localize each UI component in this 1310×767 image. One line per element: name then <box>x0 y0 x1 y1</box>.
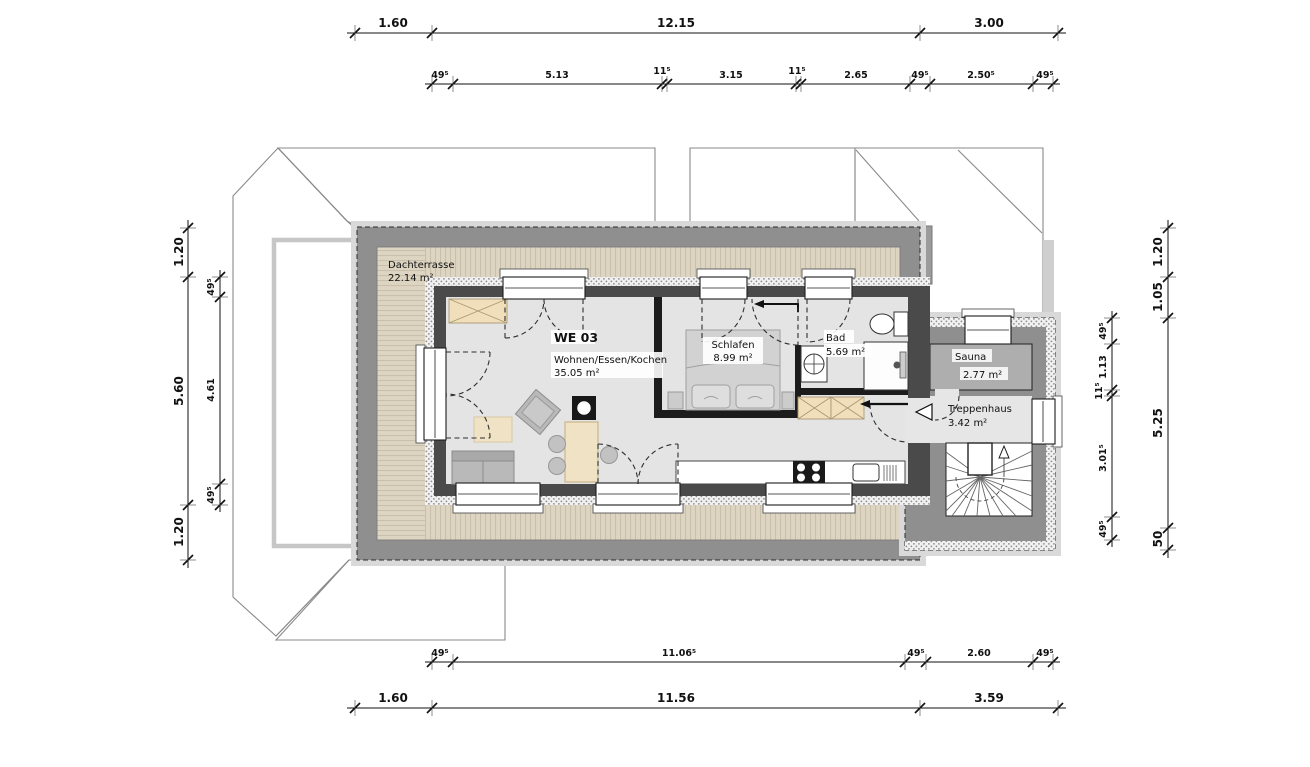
label-treppenhaus-area: 3.42 m² <box>948 418 987 429</box>
label-sauna: Sauna <box>955 352 986 363</box>
dimension-right-outer: 1.20 1.05 5.25 50 <box>1151 220 1176 558</box>
dim-label: 49⁵ <box>431 648 448 659</box>
washbasin <box>801 346 827 382</box>
dim-label: 49⁵ <box>1036 70 1053 81</box>
dim-label: 1.60 <box>378 16 408 30</box>
dim-label: 1.20 <box>172 237 186 267</box>
rug <box>474 417 512 442</box>
roof-edge-strip <box>1043 240 1054 318</box>
chair <box>601 447 618 464</box>
dim-label: 11⁵ <box>788 66 805 77</box>
roof-left-top-slope <box>278 148 655 227</box>
dining-table <box>565 422 598 482</box>
dim-label: 1.60 <box>378 691 408 705</box>
dimension-bottom-outer: 1.60 11.56 3.59 <box>347 691 1066 716</box>
dim-label: 49⁵ <box>1098 322 1109 339</box>
dim-label: 49⁵ <box>911 70 928 81</box>
label-bad-area: 5.69 m² <box>826 347 865 358</box>
dim-label: 5.60 <box>172 376 186 406</box>
dim-label: 3.01⁵ <box>1098 444 1109 472</box>
dimension-top-outer: 1.60 12.15 3.00 <box>347 16 1066 41</box>
dim-label: 3.15 <box>719 70 742 81</box>
cooktop <box>793 461 825 484</box>
roof-left-main-slope <box>233 148 358 636</box>
label-dachterrasse-area: 22.14 m² <box>388 273 434 284</box>
dimension-left-inner: 49⁵ 4.61 49⁵ <box>206 270 228 512</box>
dimension-bottom-inner: 49⁵ 11.06⁵ 49⁵ 2.60 49⁵ <box>425 648 1060 670</box>
label-treppenhaus: Treppenhaus <box>947 404 1012 415</box>
dimension-top-inner: 49⁵ 5.13 11⁵ 3.15 11⁵ 2.65 49⁵ 2.50⁵ 49⁵ <box>425 66 1060 92</box>
chair <box>549 436 566 453</box>
roof-hip-line <box>276 560 349 636</box>
sofa <box>452 451 514 484</box>
dim-label: 49⁵ <box>206 278 217 295</box>
dim-label: 11⁵ <box>653 66 670 77</box>
stove <box>572 396 596 420</box>
stair-newel <box>968 443 992 475</box>
kitchen <box>676 461 905 484</box>
dim-label: 5.25 <box>1151 408 1165 438</box>
roof-hip-line <box>958 150 1042 233</box>
floor-plan-page: Dachterrasse 22.14 m² WE 03 Wohnen/Essen… <box>0 0 1310 767</box>
sauna-door-opening <box>935 389 959 397</box>
dim-label: 1.05 <box>1151 282 1165 312</box>
dim-label: 2.65 <box>844 70 867 81</box>
label-we03: WE 03 <box>554 330 598 345</box>
dim-label: 49⁵ <box>1036 648 1053 659</box>
dim-label: 4.61 <box>206 378 217 401</box>
dimension-left-outer: 1.20 5.60 1.20 <box>172 220 196 568</box>
dim-label: 49⁵ <box>431 70 448 81</box>
label-we03-use: Wohnen/Essen/Kochen <box>554 355 667 366</box>
dim-label: 11⁵ <box>1094 382 1105 399</box>
chair <box>549 458 566 475</box>
dimension-right-inner: 49⁵ 1.13 11⁵ 3.01⁵ 49⁵ <box>1094 311 1120 547</box>
label-schlafen: Schlafen <box>711 340 754 351</box>
dim-label: 1.20 <box>1151 237 1165 267</box>
partition-bedroom-bottom <box>654 410 798 418</box>
floor-plan-svg: Dachterrasse 22.14 m² WE 03 Wohnen/Essen… <box>0 0 1310 767</box>
roof-hip-line <box>278 148 347 221</box>
dim-label: 2.60 <box>967 648 991 659</box>
dim-label: 5.13 <box>545 70 568 81</box>
dim-label: 12.15 <box>657 16 695 30</box>
dim-label: 1.13 <box>1098 355 1109 378</box>
dim-label: 3.00 <box>974 16 1004 30</box>
window-treppenhaus <box>1032 399 1055 444</box>
label-we03-area: 35.05 m² <box>554 368 600 379</box>
label-bad: Bad <box>826 333 845 344</box>
roof-right-top-slope <box>690 148 855 232</box>
roof-gutter-edge <box>274 240 355 546</box>
dim-label: 3.59 <box>974 691 1004 705</box>
label-dachterrasse: Dachterrasse <box>388 260 454 271</box>
dim-label: 11.56 <box>657 691 695 705</box>
dim-label: 49⁵ <box>1098 520 1109 537</box>
wardrobe-hall <box>798 397 864 419</box>
label-sauna-area: 2.77 m² <box>963 370 1002 381</box>
dim-label: 50 <box>1151 531 1165 548</box>
toilet <box>870 312 908 336</box>
stair-block-insulation-bottom <box>905 541 1055 550</box>
nightstand <box>782 392 794 409</box>
dim-label: 49⁵ <box>907 648 924 659</box>
nightstand <box>668 392 683 409</box>
dim-label: 1.20 <box>172 517 186 547</box>
roof-hip-line <box>856 150 919 221</box>
label-schlafen-area: 8.99 m² <box>713 353 752 364</box>
wardrobe-living <box>449 299 507 323</box>
dim-label: 11.06⁵ <box>662 648 696 659</box>
dim-label: 49⁵ <box>206 486 217 503</box>
dim-label: 2.50⁵ <box>967 70 995 81</box>
